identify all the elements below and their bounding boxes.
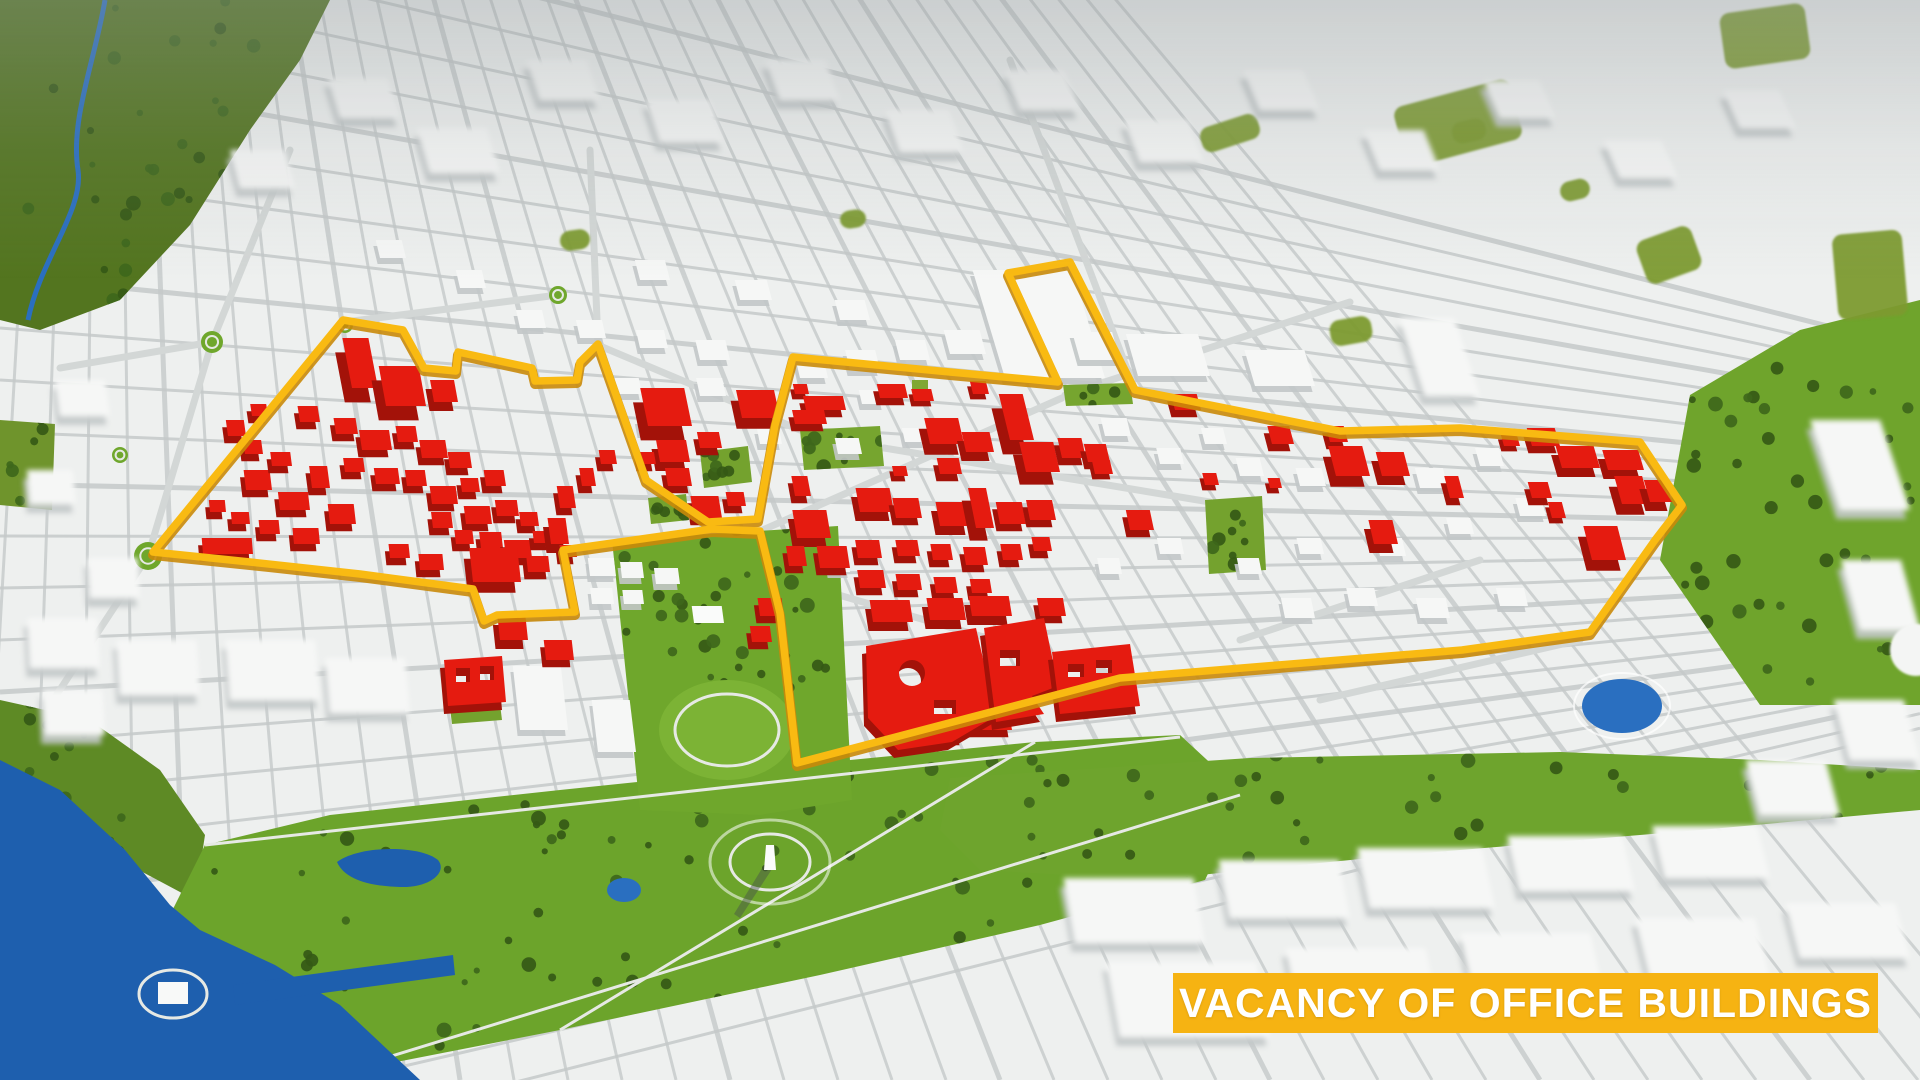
vacant-office-building xyxy=(244,470,272,490)
vacant-office-building xyxy=(924,418,964,444)
vacant-office-building xyxy=(309,466,330,488)
vacant-office-building xyxy=(792,510,831,538)
washington-monument xyxy=(764,845,776,870)
vacant-office-building xyxy=(855,540,882,558)
building xyxy=(1219,860,1351,918)
vacant-office-building xyxy=(460,478,480,492)
building xyxy=(1446,518,1474,534)
building xyxy=(696,378,726,396)
vacant-office-building xyxy=(817,546,850,568)
building xyxy=(695,340,730,360)
building xyxy=(516,310,546,328)
vacant-office-building xyxy=(469,548,521,582)
vacant-office-building xyxy=(1602,450,1644,470)
building xyxy=(55,380,110,416)
park-circle xyxy=(201,331,223,353)
building xyxy=(376,240,406,258)
building xyxy=(1416,598,1450,618)
building xyxy=(1652,826,1770,878)
building xyxy=(1281,598,1315,618)
building xyxy=(636,330,668,348)
building xyxy=(1244,350,1315,386)
vacant-office-building xyxy=(793,384,809,394)
vacant-office-building xyxy=(937,458,962,474)
vacant-office-building xyxy=(930,544,953,560)
vacant-office-building xyxy=(803,396,846,410)
vacant-office-building xyxy=(464,506,492,524)
building xyxy=(592,700,636,752)
building xyxy=(1746,760,1840,815)
vacant-office-building xyxy=(479,532,503,548)
vacant-office-building xyxy=(726,492,746,506)
building xyxy=(117,640,201,695)
building xyxy=(1201,428,1227,444)
vacant-office-building xyxy=(328,504,356,524)
vacant-office-building xyxy=(665,468,692,486)
building xyxy=(417,128,500,173)
building xyxy=(225,640,320,700)
building xyxy=(1097,558,1122,574)
building xyxy=(1635,918,1770,978)
building xyxy=(1126,334,1210,376)
vacant-office-building xyxy=(430,486,458,504)
vacant-office-building xyxy=(969,596,1012,616)
vacant-office-building xyxy=(544,640,574,660)
vacant-office-building xyxy=(896,574,923,590)
vacant-office-building xyxy=(1026,500,1056,520)
building xyxy=(1785,903,1910,958)
vacant-office-building xyxy=(292,528,320,544)
building xyxy=(588,558,616,576)
building xyxy=(654,568,680,584)
building xyxy=(27,470,76,504)
vacant-office-building xyxy=(1202,473,1219,485)
vacant-office-building xyxy=(579,468,596,486)
vacant-office-building xyxy=(962,432,995,452)
building xyxy=(835,300,870,320)
vacant-office-building xyxy=(548,518,570,544)
water-area xyxy=(607,878,641,902)
vacant-office-building xyxy=(792,410,827,424)
vacant-office-building xyxy=(374,468,400,484)
vacant-office-building xyxy=(1037,598,1066,616)
vacant-office-building xyxy=(1126,510,1154,530)
vacant-office-building xyxy=(656,440,690,462)
vacant-office-building xyxy=(259,520,280,534)
vacant-office-building xyxy=(970,579,992,593)
building xyxy=(27,618,100,668)
vacant-office-building xyxy=(454,530,474,544)
lincoln-memorial xyxy=(158,982,188,1004)
building xyxy=(895,340,930,360)
vacant-office-building xyxy=(1556,446,1600,468)
vacant-office-building xyxy=(484,470,506,486)
vacant-office-complex xyxy=(444,656,506,706)
building xyxy=(230,150,295,188)
building xyxy=(1237,558,1262,574)
building xyxy=(735,280,772,300)
map-visualization: VACANCY OF OFFICE BUILDINGS xyxy=(0,0,1920,1080)
building xyxy=(43,690,106,735)
building xyxy=(1236,458,1264,476)
vacant-office-building xyxy=(750,626,772,642)
water-area xyxy=(1582,679,1662,733)
park-circle xyxy=(112,447,128,463)
vacant-office-building xyxy=(736,390,780,418)
vacant-office-building xyxy=(359,430,392,450)
building xyxy=(590,588,614,604)
park-circle xyxy=(549,286,567,304)
building xyxy=(622,590,644,604)
building xyxy=(325,658,410,713)
building xyxy=(1357,848,1495,908)
building xyxy=(1101,418,1131,436)
vacant-office-building xyxy=(519,512,539,526)
vacant-office-building xyxy=(1031,537,1052,551)
vacant-office-building xyxy=(857,570,886,588)
building xyxy=(635,260,670,280)
building xyxy=(1346,588,1378,606)
vacant-office-building xyxy=(599,450,617,464)
building xyxy=(88,558,141,598)
building xyxy=(944,330,986,354)
vacant-office-building xyxy=(963,547,988,565)
vacant-office-building xyxy=(640,388,692,426)
vacant-office-building xyxy=(278,492,310,510)
title-banner-label: VACANCY OF OFFICE BUILDINGS xyxy=(1179,980,1872,1027)
building xyxy=(1496,588,1528,606)
vacant-office-building xyxy=(1000,544,1023,560)
building xyxy=(1296,468,1327,486)
building xyxy=(576,320,606,338)
vacant-office-building xyxy=(495,500,519,516)
vacant-office-building xyxy=(419,440,448,458)
vacant-office-building xyxy=(877,384,908,398)
vacant-office-building xyxy=(343,458,365,472)
vacant-office-building xyxy=(430,380,458,402)
vacant-office-building xyxy=(856,488,895,512)
vacant-office-building xyxy=(231,512,250,524)
building xyxy=(328,78,400,118)
building xyxy=(1507,836,1635,891)
vacant-office-building xyxy=(418,554,444,570)
vacant-office-building xyxy=(448,452,472,468)
vacant-office-building xyxy=(1092,460,1113,474)
vacant-office-building xyxy=(911,389,934,401)
vacant-office-building xyxy=(933,577,958,593)
vacant-office-building xyxy=(209,500,226,512)
vacant-office-building xyxy=(892,466,908,476)
vacant-office-building xyxy=(1268,478,1282,488)
building xyxy=(620,562,644,578)
building xyxy=(1157,538,1184,554)
vacant-office-building xyxy=(895,540,920,556)
vacant-office-building xyxy=(270,452,292,466)
white-house xyxy=(692,606,724,623)
vacant-office-building xyxy=(870,600,913,622)
vacant-office-building xyxy=(526,556,550,572)
vacant-office-building xyxy=(405,470,427,486)
building xyxy=(513,666,568,730)
building xyxy=(835,438,862,454)
vacant-office-building xyxy=(557,486,576,508)
building xyxy=(1297,538,1325,554)
title-banner: VACANCY OF OFFICE BUILDINGS xyxy=(1173,973,1878,1033)
city-3d-map xyxy=(0,0,1920,1080)
building xyxy=(456,270,486,288)
vacant-office-building xyxy=(431,512,453,528)
vacant-office-building xyxy=(334,418,359,434)
vacant-office-building xyxy=(202,538,253,554)
vacant-office-building xyxy=(786,546,807,566)
vacant-office-building xyxy=(892,498,922,518)
vacant-office-building xyxy=(996,502,1026,524)
building xyxy=(1063,878,1205,943)
vacant-office-building xyxy=(396,426,419,442)
building xyxy=(1156,448,1184,464)
vacant-office-building xyxy=(298,406,321,422)
vacant-office-building xyxy=(226,420,246,436)
vacant-office-building xyxy=(389,544,411,558)
vacant-office-building xyxy=(697,432,722,448)
vacant-office-building xyxy=(1084,444,1110,462)
vacant-office-building xyxy=(1019,442,1060,472)
building xyxy=(1475,448,1504,466)
vacant-office-building xyxy=(926,598,966,620)
